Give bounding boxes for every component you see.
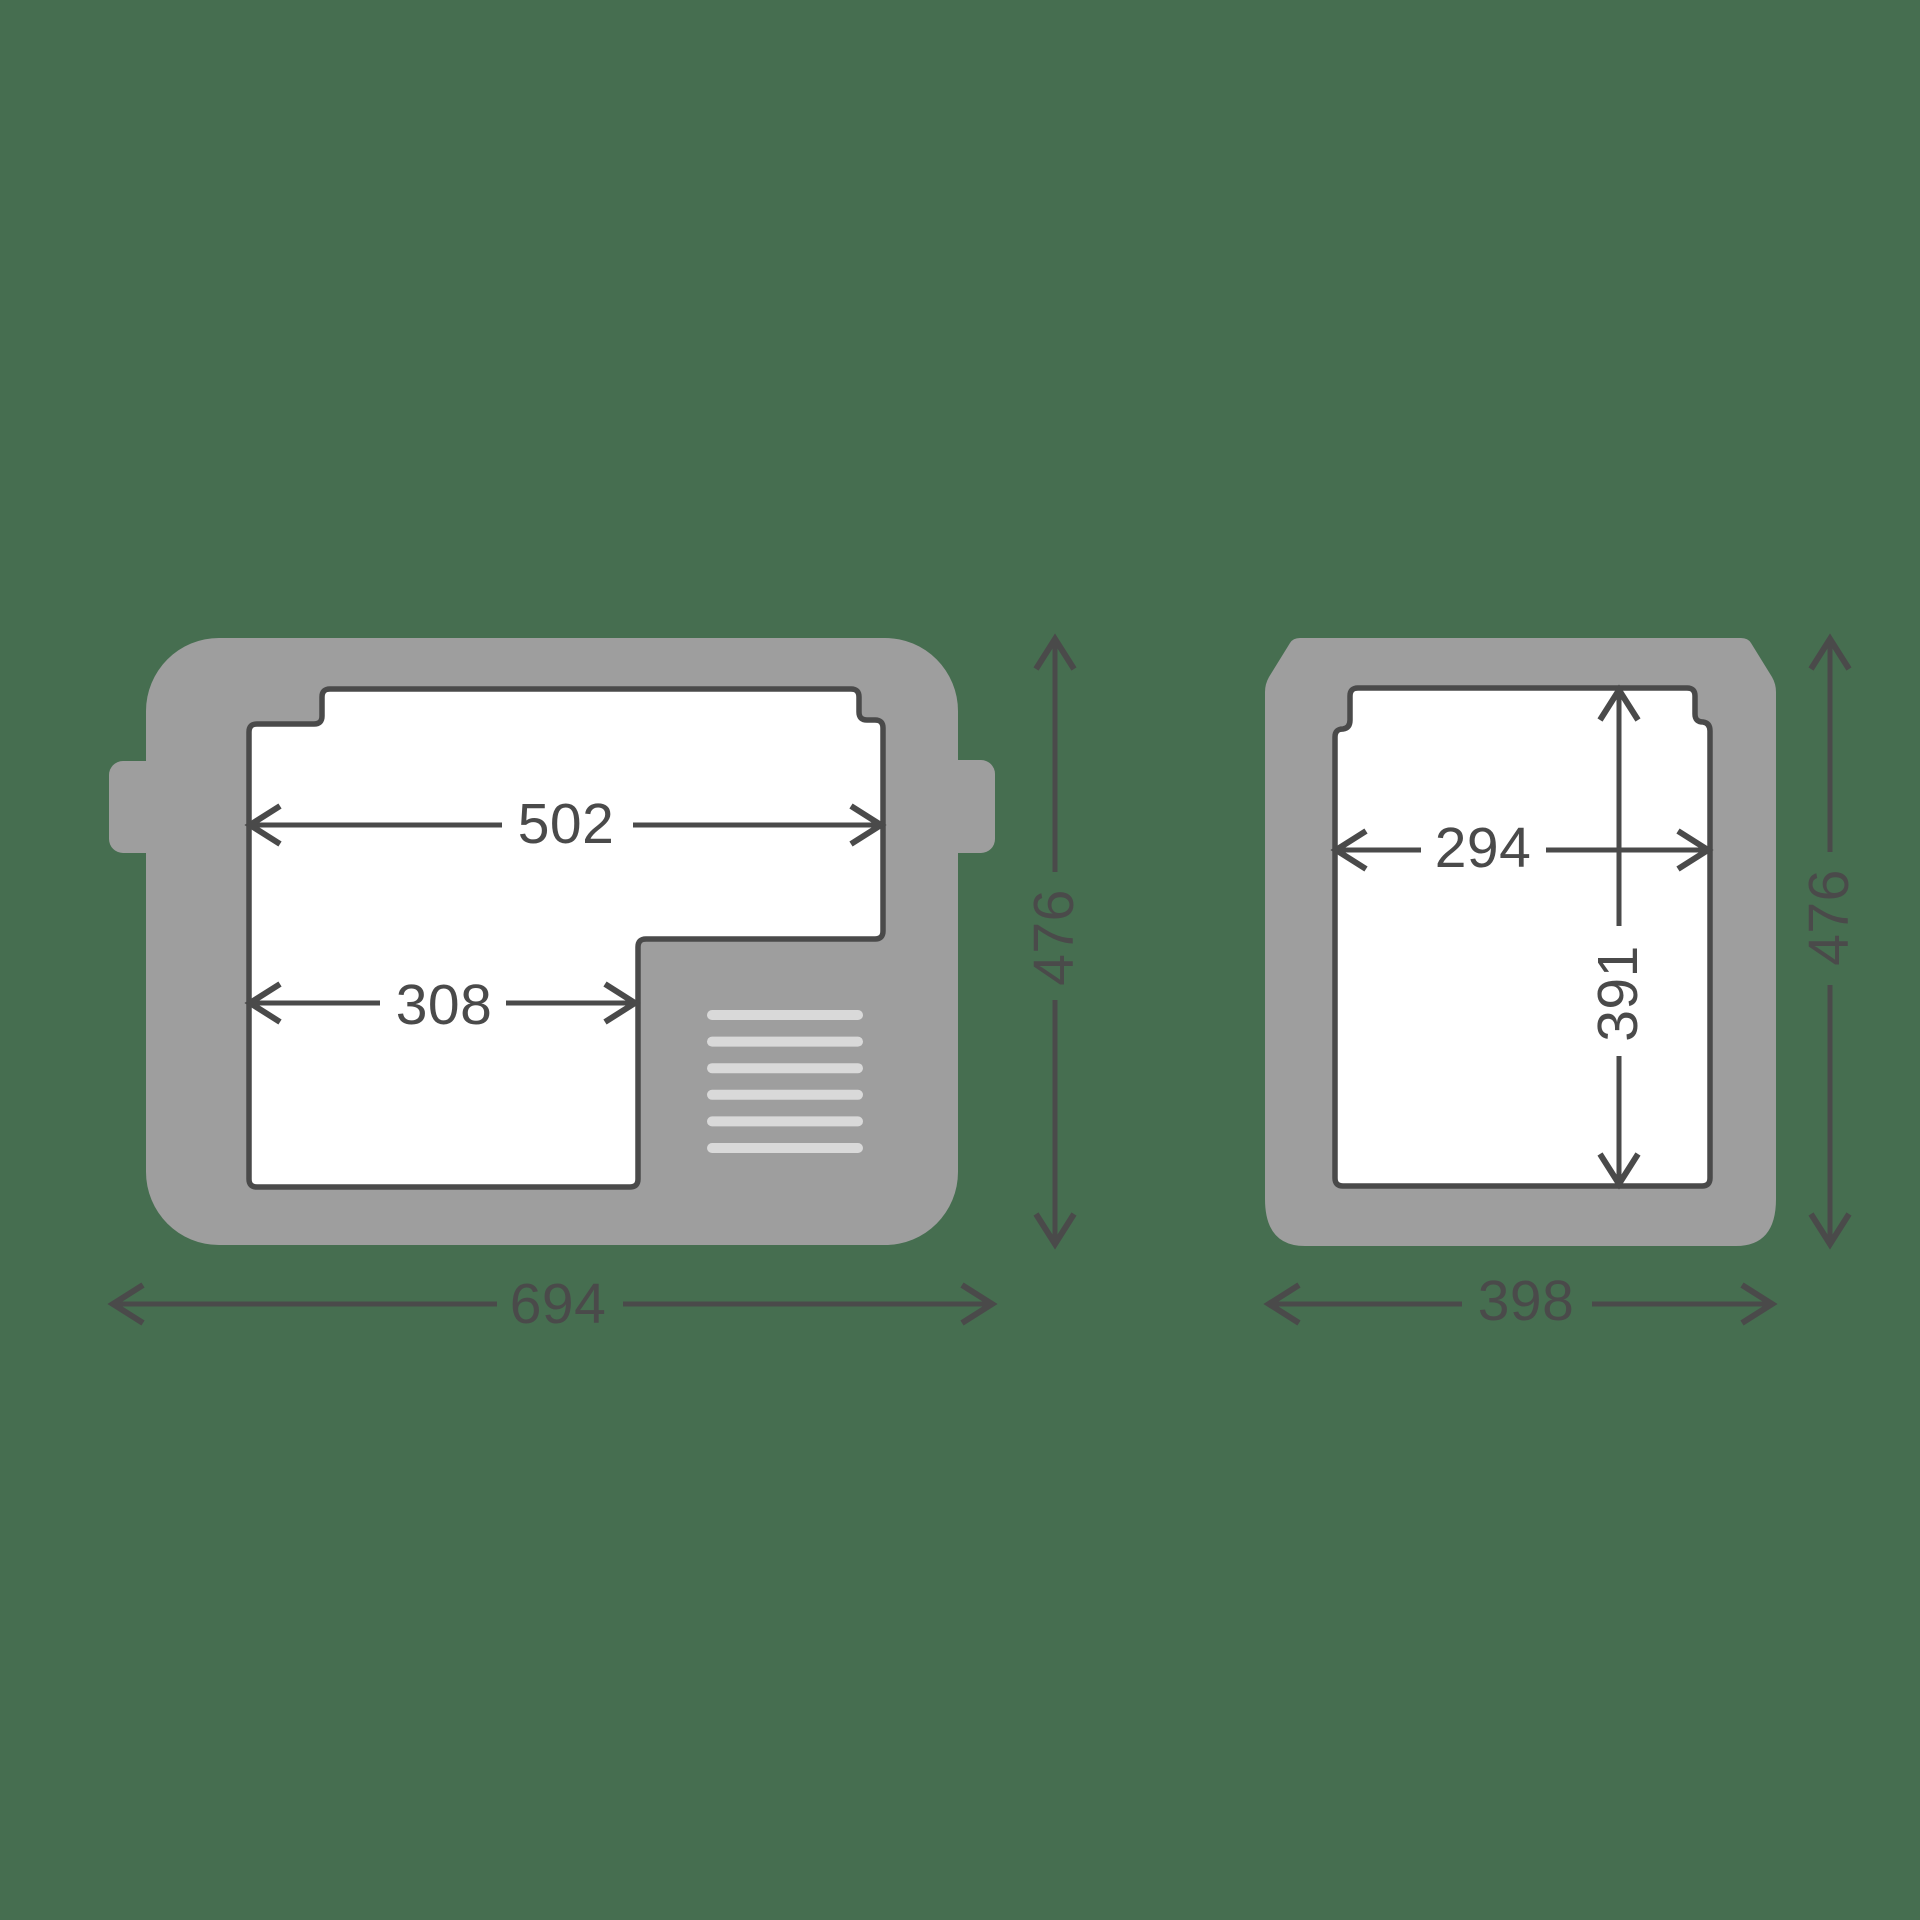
svg-text:476: 476 [1022,889,1086,986]
svg-text:308: 308 [396,973,493,1037]
svg-text:294: 294 [1435,816,1532,880]
svg-text:502: 502 [518,792,615,856]
svg-text:694: 694 [510,1272,607,1336]
svg-text:398: 398 [1478,1269,1575,1333]
svg-text:391: 391 [1586,945,1650,1042]
svg-text:476: 476 [1797,869,1861,966]
